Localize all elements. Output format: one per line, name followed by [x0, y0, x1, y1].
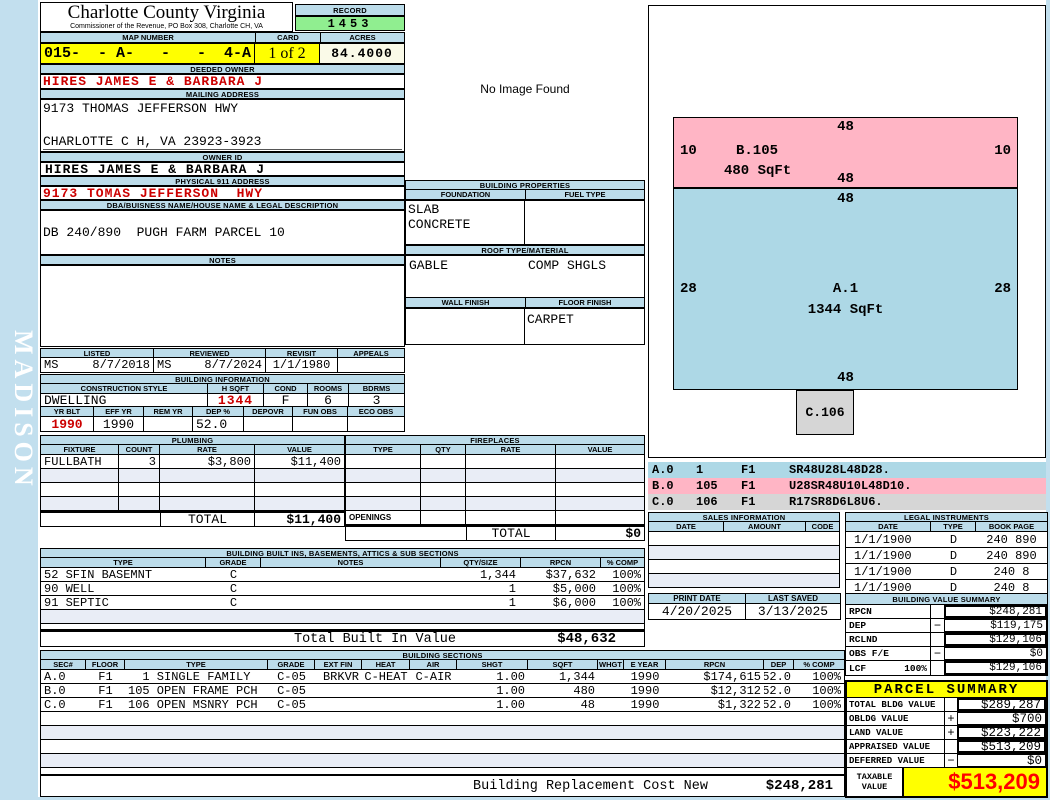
- commissioner-line: Commissioner of the Revenue, PO Box 308,…: [41, 23, 292, 30]
- notes-label: NOTES: [40, 255, 405, 265]
- table-row: [648, 560, 840, 574]
- county-title: Charlotte County Virginia: [41, 3, 292, 23]
- row-value: $0: [957, 754, 1046, 767]
- acres-label: ACRES: [321, 33, 404, 42]
- cell: [261, 568, 439, 581]
- appeals-label: APPEALS: [338, 349, 404, 357]
- deeded-owner-value: HIRES JAMES E & BARBARA J: [40, 74, 405, 89]
- print-info-values: 4/20/2025 3/13/2025: [648, 604, 841, 620]
- cell: $3,800: [160, 455, 255, 468]
- col-eyear: E YEAR: [624, 660, 666, 669]
- cell: $1,322: [666, 698, 764, 711]
- cell: 3: [119, 455, 160, 468]
- section-c-label: C.106: [805, 405, 844, 420]
- parcel-row: LAND VALUE + $223,222: [847, 726, 1046, 740]
- remyr-label: REM YR: [144, 407, 193, 416]
- col-sec: SEC#: [41, 660, 86, 669]
- map-card-acres-header: MAP NUMBER CARD ACRES: [40, 32, 405, 43]
- table-row: B.0 F1 105 OPEN FRAME PCH C-05 1.00 480 …: [40, 684, 845, 698]
- sales-info-table: SALES INFORMATION DATE AMOUNT CODE: [648, 512, 840, 588]
- row-operator: +: [947, 712, 954, 725]
- cell: C-05: [268, 670, 315, 683]
- roof-type: GABLE: [409, 258, 448, 273]
- row-value: $513,209: [957, 740, 1046, 753]
- ecoobs-value: [348, 417, 404, 431]
- construction-header: CONSTRUCTION STYLE H SQFT COND ROOMS BDR…: [40, 384, 405, 394]
- table-row: [40, 483, 345, 497]
- fuel-value: [525, 200, 645, 245]
- title-box: Charlotte County Virginia Commissioner o…: [40, 2, 293, 32]
- table-row: [40, 469, 345, 483]
- sketch-panel: 48 10 B.105 10 480 SqFt 48 48 28 A.1 28 …: [648, 5, 1046, 458]
- row-operator: +: [947, 726, 954, 739]
- cell: F1: [86, 670, 125, 683]
- built-ins-table: BUILDING BUILT INS, BASEMENTS, ATTICS & …: [40, 548, 645, 647]
- row-operator: −: [947, 754, 954, 767]
- cell: [598, 684, 624, 697]
- acres-value: 84.4000: [320, 43, 405, 64]
- summary-row: LCF100% $129,106: [846, 661, 1047, 675]
- rooms-label: ROOMS: [308, 384, 349, 393]
- cell: $174,615: [666, 670, 764, 683]
- print-info: PRINT DATE LAST SAVED 4/20/2025 3/13/202…: [648, 593, 841, 620]
- row-value: $289,287: [957, 698, 1046, 711]
- map-number-value: 015- - A- - - 4-A: [40, 43, 255, 64]
- col-type: TYPE: [125, 660, 268, 669]
- cell: [362, 684, 410, 697]
- col-date: DATE: [649, 522, 724, 531]
- cell: F1: [86, 684, 125, 697]
- floor-label: FLOOR FINISH: [526, 298, 644, 307]
- cell: $37,632: [519, 568, 599, 581]
- col-rpcn: RPCN: [521, 558, 601, 567]
- bdrms-label: BDRMS: [349, 384, 404, 393]
- col-fixture: FIXTURE: [41, 445, 119, 454]
- cell: 106 OPEN MSNRY PCH: [125, 698, 268, 711]
- building-sections-table: BUILDING SECTIONS SEC# FLOOR TYPE GRADE …: [40, 650, 845, 797]
- revisit-value: 1/1/1980: [266, 358, 338, 372]
- cell: 1.00: [457, 698, 528, 711]
- table-row: [648, 532, 840, 546]
- legal-description-value: DB 240/890 PUGH FARM PARCEL 10: [40, 210, 405, 255]
- col-rate: RATE: [160, 445, 255, 454]
- visits-values: MS8/7/2018 MS8/7/2024 1/1/1980: [40, 358, 405, 373]
- cell: BRKVR: [315, 670, 362, 683]
- hsqft-value: 1344: [208, 394, 264, 406]
- row-value: $129,106: [944, 633, 1047, 646]
- cell: [362, 698, 410, 711]
- building-sections-title: BUILDING SECTIONS: [40, 650, 845, 660]
- row-value: $223,222: [957, 726, 1046, 739]
- row-operator: −: [934, 619, 941, 632]
- fireplaces-title: FIREPLACES: [345, 435, 645, 445]
- table-row: 1/1/1900 D 240 8: [845, 564, 1048, 580]
- cell: 106: [693, 494, 738, 510]
- wall-floor-values: CARPET: [405, 308, 645, 345]
- table-row: [40, 610, 645, 624]
- appeals-value: [338, 358, 404, 372]
- built-ins-total-row: Total Built In Value $48,632: [40, 630, 645, 647]
- replacement-cost-value: $248,281: [741, 776, 836, 796]
- summary-row: DEP − $119,175: [846, 619, 1047, 633]
- built-ins-total-label: Total Built In Value: [291, 632, 459, 646]
- col-count: COUNT: [119, 445, 160, 454]
- built-ins-col-headers: TYPE GRADE NOTES QTY/SIZE RPCN % COMP: [40, 558, 645, 568]
- dim-top: 48: [674, 191, 1017, 207]
- built-ins-title: BUILDING BUILT INS, BASEMENTS, ATTICS & …: [40, 548, 645, 558]
- cell: 1,344: [439, 568, 519, 581]
- cell: U28SR48U10L48D10.: [786, 478, 914, 494]
- visits-header: LISTED REVIEWED REVISIT APPEALS: [40, 348, 405, 358]
- parcel-row: TOTAL BLDG VALUE $289,287: [847, 698, 1046, 712]
- plumbing-total-row: TOTAL $11,400: [40, 511, 345, 527]
- table-row: [345, 469, 645, 483]
- col-qty-size: QTY/SIZE: [441, 558, 521, 567]
- foundation-fuel-values: SLAB CONCRETE: [405, 200, 645, 245]
- cell: 1,344: [528, 670, 598, 683]
- depovr-label: DEPOVR: [244, 407, 293, 416]
- fireplaces-total-label: TOTAL: [466, 527, 556, 540]
- revisit-label: REVISIT: [266, 349, 338, 357]
- cell: 1 SINGLE FAMILY: [125, 670, 268, 683]
- col-heat: HEAT: [362, 660, 410, 669]
- summary-row: RPCN $248,281: [846, 605, 1047, 619]
- replacement-cost-label: Building Replacement Cost New: [470, 776, 711, 796]
- mailing-address-box: 9173 THOMAS JEFFERSON HWY CHARLOTTE C H,…: [40, 99, 405, 152]
- cell: D: [931, 564, 976, 579]
- remyr-value: [144, 417, 193, 431]
- table-row: C.0 F1 106 OPEN MSNRY PCH C-05 1.00 48 1…: [40, 698, 845, 712]
- cond-label: COND: [264, 384, 308, 393]
- row-value: $248,281: [944, 605, 1047, 618]
- year-values: 1990 1990 52.0: [40, 417, 405, 432]
- cell: C-05: [268, 684, 315, 697]
- wall-value: [405, 308, 525, 345]
- cell: C: [206, 596, 261, 609]
- cell: F1: [738, 462, 786, 478]
- effyr-label: EFF YR: [94, 407, 144, 416]
- replacement-cost-row: Building Replacement Cost New $248,281: [40, 775, 845, 797]
- listed-value: MS8/7/2018: [41, 358, 154, 372]
- sketch-legend: A.0 1 F1 SR48U28L48D28. B.0 105 F1 U28SR…: [648, 462, 1046, 510]
- cell: 1: [693, 462, 738, 478]
- row-label: DEP: [849, 620, 866, 631]
- cell: 48: [528, 698, 598, 711]
- col-amount: AMOUNT: [724, 522, 806, 531]
- col-date: DATE: [846, 522, 931, 531]
- no-image-placeholder: No Image Found: [405, 82, 645, 96]
- cell: 1990: [624, 698, 666, 711]
- map-number-label: MAP NUMBER: [41, 33, 256, 42]
- row-label: OBS F/E: [849, 648, 889, 659]
- roof-label: ROOF TYPE/MATERIAL: [405, 245, 645, 255]
- col-qty: QTY: [421, 445, 466, 454]
- yrblt-value: 1990: [41, 417, 94, 431]
- table-row: [40, 740, 845, 754]
- fireplaces-table: FIREPLACES TYPE QTY RATE VALUE OPENINGS …: [345, 435, 645, 541]
- cell: 1: [439, 596, 519, 609]
- taxable-value: $513,209: [904, 768, 1046, 796]
- cell: C.0: [41, 698, 86, 711]
- fireplaces-total-value: $0: [556, 527, 644, 540]
- cell: C-HEAT: [362, 670, 410, 683]
- cell: 100%: [794, 698, 844, 711]
- cell: F1: [738, 478, 786, 494]
- built-ins-total-value: $48,632: [459, 632, 644, 646]
- cell: [315, 698, 362, 711]
- cell: 91 SEPTIC: [41, 596, 206, 609]
- col-book-page: BOOK PAGE: [976, 522, 1047, 531]
- cell: $5,000: [519, 582, 599, 595]
- col-type: TYPE: [931, 522, 976, 531]
- reviewed-value: MS8/7/2024: [154, 358, 266, 372]
- cell: 105: [693, 478, 738, 494]
- record-label: RECORD: [295, 4, 405, 16]
- parcel-row: APPRAISED VALUE $513,209: [847, 740, 1046, 754]
- plumbing-title: PLUMBING: [40, 435, 345, 445]
- row-value: $129,106: [944, 661, 1047, 675]
- funobs-value: [293, 417, 348, 431]
- sections-col-headers: SEC# FLOOR TYPE GRADE EXT FIN HEAT AIR S…: [40, 660, 845, 670]
- row-label: LCF: [849, 663, 866, 674]
- col-extfin: EXT FIN: [315, 660, 362, 669]
- cell: 1: [439, 582, 519, 595]
- legend-row-a: A.0 1 F1 SR48U28L48D28.: [648, 462, 1046, 478]
- table-row: 52 SFIN BASEMNT C 1,344 $37,632 100%: [40, 568, 645, 582]
- cell: 100%: [599, 568, 644, 581]
- cell: B.0: [648, 478, 693, 494]
- cell: 1.00: [457, 684, 528, 697]
- cell: R17SR8D6L8U6.: [786, 494, 886, 510]
- cell: FULLBATH: [41, 455, 119, 468]
- col-type: TYPE: [346, 445, 421, 454]
- cell: C.0: [648, 494, 693, 510]
- record-value: 1453: [295, 16, 405, 31]
- cell: 1.00: [457, 670, 528, 683]
- row-label: OBLDG VALUE: [849, 714, 908, 724]
- bdrms-value: 3: [349, 394, 404, 406]
- cell: 100%: [794, 684, 844, 697]
- table-row: 1/1/1900 D 240 890: [845, 548, 1048, 564]
- table-row: [40, 712, 845, 726]
- table-row: FULLBATH 3 $3,800 $11,400: [40, 455, 345, 469]
- last-saved-label: LAST SAVED: [746, 594, 840, 603]
- row-value: $119,175: [944, 619, 1047, 632]
- table-row: [648, 574, 840, 588]
- cell: D: [931, 532, 976, 547]
- cell: [261, 582, 439, 595]
- foundation-fuel-header: FOUNDATION FUEL TYPE: [405, 190, 645, 200]
- parcel-summary: PARCEL SUMMARY TOTAL BLDG VALUE $289,287…: [845, 680, 1048, 798]
- fireplaces-total-row: TOTAL $0: [345, 525, 645, 541]
- legend-row-b: B.0 105 F1 U28SR48U10L48D10.: [648, 478, 1046, 494]
- cell: 52.0: [764, 698, 794, 711]
- row-label: LAND VALUE: [849, 728, 903, 738]
- cond-value: F: [264, 394, 308, 406]
- sketch-section-b: 48 10 B.105 10 480 SqFt 48: [673, 117, 1018, 188]
- cell: [598, 670, 624, 683]
- cell: C: [206, 568, 261, 581]
- foundation-value: SLAB CONCRETE: [405, 200, 525, 245]
- row-value: $0: [944, 647, 1047, 660]
- building-properties-title: BUILDING PROPERTIES: [405, 180, 645, 190]
- col-notes: NOTES: [261, 558, 441, 567]
- style-value: DWELLING: [41, 394, 208, 406]
- col-value: VALUE: [556, 445, 644, 454]
- openings-label: OPENINGS: [346, 511, 421, 524]
- col-shgt: SHGT: [457, 660, 528, 669]
- cell: 1/1/1900: [846, 564, 931, 579]
- foundation-label: FOUNDATION: [406, 190, 526, 199]
- col-dep: DEP: [764, 660, 794, 669]
- cell: [598, 698, 624, 711]
- wall-label: WALL FINISH: [406, 298, 526, 307]
- card-value: 1 of 2: [255, 43, 320, 64]
- legal-col-headers: DATE TYPE BOOK PAGE: [845, 522, 1048, 532]
- dim-top: 48: [674, 119, 1017, 135]
- building-info-title: BUILDING INFORMATION: [40, 374, 405, 384]
- roof-material: COMP SHGLS: [528, 258, 606, 273]
- mailing-line2: CHARLOTTE C H, VA 23923-3923: [43, 134, 402, 150]
- cell: 52 SFIN BASEMNT: [41, 568, 206, 581]
- cell: 100%: [599, 596, 644, 609]
- roof-value: GABLE COMP SHGLS: [405, 255, 645, 298]
- effyr-value: 1990: [94, 417, 144, 431]
- cell: C-05: [268, 698, 315, 711]
- depovr-value: [244, 417, 293, 431]
- cell: $6,000: [519, 596, 599, 609]
- plumbing-col-headers: FIXTURE COUNT RATE VALUE: [40, 445, 345, 455]
- cell: C-AIR: [410, 670, 457, 683]
- value-summary-title: BUILDING VALUE SUMMARY: [846, 594, 1047, 605]
- floor-value: CARPET: [525, 308, 645, 345]
- physical-address-value: 9173 TOMAS JEFFERSON HWY: [40, 186, 405, 200]
- owner-id-label: OWNER ID: [40, 152, 405, 162]
- row-operator: −: [934, 647, 941, 660]
- section-a-sqft: 1344 SqFt: [674, 302, 1017, 318]
- cell: 105 OPEN FRAME PCH: [125, 684, 268, 697]
- section-a-label: A.1: [674, 281, 1017, 297]
- owner-id-value: HIRES JAMES E & BARBARA J: [40, 162, 405, 176]
- cell: $11,400: [255, 455, 344, 468]
- row-value: $700: [957, 712, 1046, 725]
- wall-floor-header: WALL FINISH FLOOR FINISH: [405, 298, 645, 308]
- legal-instruments-table: LEGAL INSTRUMENTS DATE TYPE BOOK PAGE 1/…: [845, 512, 1048, 596]
- dep-label: DEP %: [193, 407, 244, 416]
- cell: 52.0: [764, 670, 794, 683]
- col-floor: FLOOR: [86, 660, 125, 669]
- cell: 1990: [624, 684, 666, 697]
- dba-label: DBA/BUISNESS NAME/HOUSE NAME & LEGAL DES…: [40, 200, 405, 210]
- col-value: VALUE: [255, 445, 344, 454]
- row-label: RCLND: [849, 634, 878, 645]
- cell: B.0: [41, 684, 86, 697]
- taxable-row: TAXABLE VALUE $513,209: [847, 768, 1046, 796]
- summary-row: RCLND $129,106: [846, 633, 1047, 647]
- cell: A.0: [648, 462, 693, 478]
- table-row: [40, 754, 845, 768]
- style-label: CONSTRUCTION STYLE: [41, 384, 208, 393]
- card-label: CARD: [256, 33, 321, 42]
- openings-row: OPENINGS: [345, 511, 645, 525]
- plumbing-total-value: $11,400: [255, 513, 344, 526]
- sales-info-title: SALES INFORMATION: [648, 512, 840, 522]
- print-date-label: PRINT DATE: [649, 594, 746, 603]
- cell: $12,312: [666, 684, 764, 697]
- table-row: [345, 497, 645, 511]
- table-row: [40, 768, 845, 775]
- cell: 1/1/1900: [846, 532, 931, 547]
- plumbing-total-label: TOTAL: [160, 513, 255, 526]
- summary-row: OBS F/E − $0: [846, 647, 1047, 661]
- col-sqft: SQFT: [528, 660, 598, 669]
- col-type: TYPE: [41, 558, 206, 567]
- col-comp: % COMP: [794, 660, 844, 669]
- cell: [410, 684, 457, 697]
- dim-right: 28: [994, 281, 1011, 297]
- county-watermark: MADISON: [1, 330, 38, 490]
- cell: [410, 698, 457, 711]
- table-row: [345, 455, 645, 469]
- fuel-label: FUEL TYPE: [526, 190, 644, 199]
- funobs-label: FUN OBS: [293, 407, 348, 416]
- cell: 240 890: [976, 548, 1047, 563]
- col-grade: GRADE: [206, 558, 261, 567]
- listed-label: LISTED: [41, 349, 154, 357]
- col-comp: % COMP: [601, 558, 644, 567]
- dim-bottom: 48: [674, 370, 1017, 386]
- dim-bottom: 48: [674, 171, 1017, 187]
- last-saved-value: 3/13/2025: [746, 604, 840, 619]
- col-grade: GRADE: [268, 660, 315, 669]
- ecoobs-label: ECO OBS: [348, 407, 404, 416]
- col-rpcn: RPCN: [666, 660, 764, 669]
- construction-values: DWELLING 1344 F 6 3: [40, 394, 405, 407]
- table-row: A.0 F1 1 SINGLE FAMILY C-05 BRKVR C-HEAT…: [40, 670, 845, 684]
- legal-instruments-title: LEGAL INSTRUMENTS: [845, 512, 1048, 522]
- col-code: CODE: [806, 522, 839, 531]
- cell: 240 8: [976, 564, 1047, 579]
- print-info-header: PRINT DATE LAST SAVED: [648, 593, 841, 604]
- sketch-section-c: C.106: [796, 390, 854, 435]
- table-row: 1/1/1900 D 240 890: [845, 532, 1048, 548]
- row-label: DEFERRED VALUE: [849, 756, 925, 766]
- table-row: [40, 726, 845, 740]
- row-label: APPRAISED VALUE: [849, 742, 930, 752]
- plumbing-table: PLUMBING FIXTURE COUNT RATE VALUE FULLBA…: [40, 435, 345, 527]
- table-row: [40, 497, 345, 511]
- cell: 240 890: [976, 532, 1047, 547]
- cell: 1990: [624, 670, 666, 683]
- col-rate: RATE: [466, 445, 556, 454]
- row-label: RPCN: [849, 606, 872, 617]
- map-card-acres-values: 015- - A- - - 4-A 1 of 2 84.4000: [40, 43, 405, 64]
- dim-right: 10: [994, 143, 1011, 159]
- cell: F1: [86, 698, 125, 711]
- cell: F1: [738, 494, 786, 510]
- hsqft-label: H SQFT: [208, 384, 264, 393]
- cell: [315, 684, 362, 697]
- dep-value: 52.0: [193, 417, 244, 431]
- table-row: [345, 483, 645, 497]
- year-header: YR BLT EFF YR REM YR DEP % DEPOVR FUN OB…: [40, 407, 405, 417]
- physical-address-label: PHYSICAL 911 ADDRESS: [40, 176, 405, 186]
- parcel-row: DEFERRED VALUE − $0: [847, 754, 1046, 768]
- cell: 52.0: [764, 684, 794, 697]
- mailing-address-label: MAILING ADDRESS: [40, 89, 405, 99]
- cell: A.0: [41, 670, 86, 683]
- table-row: 90 WELL C 1 $5,000 100%: [40, 582, 645, 596]
